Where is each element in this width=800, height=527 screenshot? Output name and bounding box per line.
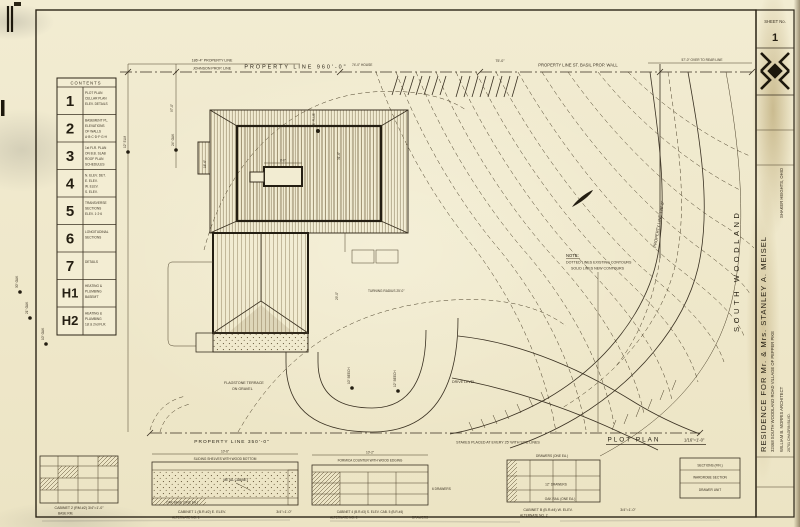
street-name-label: SOUTH WOODLAND	[732, 210, 741, 332]
cabinet-4-note-top: FORMICA COUNTER WITH WOOD EDGING	[338, 459, 403, 463]
contents-row-desc: A·B·C·D·F·G·H	[85, 135, 108, 139]
contents-row-num: 7	[66, 258, 74, 275]
sheet-border	[36, 10, 794, 517]
cabinet-1-subcaption: ALTERNATE NO. 1	[172, 516, 200, 520]
turning-radius-label: TURNING RADIUS 25'-0"	[368, 289, 404, 293]
property-line-right-label: PROPERTY LINE 135'-0"	[652, 200, 665, 248]
property-line-east-label: PROPERTY LINE ST. BASIL PROP. WALL	[538, 63, 618, 68]
contour-note: NOTE: DOTTED LINES EXISTING CONTOURS SOL…	[566, 190, 632, 271]
tree-label: 12" ELM	[123, 136, 127, 148]
architect-logo-icon	[761, 53, 789, 89]
cabinet-b-note-mid: 12" DRAWERS	[545, 483, 567, 487]
contents-row-desc: W. ELEV.	[85, 185, 99, 189]
tree-label: 21" OAK	[25, 301, 29, 314]
contents-row-desc: ELEVATIONS	[85, 124, 105, 128]
cabinet-4-dim: 10'-2"	[366, 451, 374, 455]
plot-plan-caption: PLOT PLAN 1/16"=1'-0"	[606, 437, 706, 445]
rear-line-label: 57'-0" OVER TO REAR LINE	[682, 58, 723, 62]
tree-label: 24" OAK	[171, 133, 175, 146]
top-dim-label: 186'-4" PROPERTY LINE	[192, 59, 233, 63]
note-title: NOTE:	[566, 253, 579, 258]
pencil-scribbles	[42, 520, 720, 522]
contents-table: CONTENTS 1 PLOT PLAN CELLAR PLAN ELEV. D…	[57, 78, 116, 335]
contents-row-desc: 1st FLR. PLAN	[85, 146, 107, 150]
cabinet-b-scale: 3/4"=1'-0"	[620, 508, 636, 512]
north-dim-label: 97'-0"	[170, 104, 174, 112]
west-dim-label: 16'-6"	[203, 160, 207, 168]
contents-row-desc: ROOF PLAN	[85, 157, 104, 161]
cabinet-1-note-top: SLIDING SHELVES WITH WOOD BOTTOM	[194, 457, 257, 461]
right-dim-label: 75'-0"	[495, 59, 505, 63]
cabinet-b-detail: DRAWERS (ONE EA.) 12" DRAWERS OAK RAIL (…	[507, 454, 636, 518]
contents-header: CONTENTS	[70, 81, 101, 86]
note-line-2: SOLID LINES NEW CONTOURS	[571, 267, 625, 271]
contents-row-num: H1	[62, 286, 79, 301]
cabinet-2-caption: CABINET 2 (RM.#2) 3/4"=1'-0"	[54, 506, 104, 510]
cabinet-1-scale: 3/4"=1'-0"	[276, 510, 292, 514]
property-line-top-label: PROPERTY LINE 960'-0"	[244, 65, 347, 71]
sections-header: SECTIONS (FIN.)	[697, 464, 722, 468]
cabinet-4-detail: 10'-2" FORMICA COUNTER WITH WOOD EDGING …	[312, 451, 451, 520]
contents-row-desc: TRANSVERSE	[85, 201, 107, 205]
cabinet-1-caption: CABINET 1 (B.R.#2) E. ELEV.	[178, 510, 226, 514]
contents-row-num: H2	[62, 313, 79, 328]
tree-label: 12" BEECH	[393, 370, 397, 387]
contents-row-num: 2	[66, 121, 74, 138]
contents-row-desc: S. ELEV.	[85, 190, 98, 194]
title-address: 32468 SOUTH WOODLAND ROAD VILLAGE OF PEP…	[770, 331, 775, 452]
contents-row-desc: N. ELEV. DET.	[85, 174, 106, 178]
contents-row-desc: ELEV. 1·2·6	[85, 212, 102, 216]
contents-row-desc: LONGITUDINAL	[85, 230, 109, 234]
contents-row-desc: SCHEDULES	[85, 163, 105, 167]
contents-row-num: 1	[66, 93, 74, 110]
contents-row-desc: CELLAR PLAN	[85, 97, 107, 101]
title-architect-city: SHAKER HEIGHTS, OHIO	[779, 167, 784, 218]
contents-row-desc: BASEM'T	[85, 295, 99, 299]
tree-label: 30" OAK	[15, 275, 19, 288]
sheet-number-label: SHEET No.	[764, 19, 786, 24]
cabinet-b-note-base: OAK RAIL (ONE EA.)	[545, 497, 576, 501]
title-architect: WILLIAM B. MORRIS ARCHITECT	[779, 386, 784, 452]
tree-label: 10" BEECH	[347, 367, 351, 384]
wing-dim-label: 29'-0"	[335, 292, 339, 300]
cabinet-2-subcaption: BASE RM.	[58, 512, 73, 516]
property-line-bottom-label: PROPERTY LINE 350'-0"	[194, 439, 269, 445]
cabinet-b-subcaption: ALTERNATE NO. 2	[520, 514, 548, 518]
sections-note-1: WARDROBE SECTION	[693, 476, 727, 480]
title-project: RESIDENCE FOR Mr. & Mrs. STANLEY A. MEIS…	[759, 236, 768, 452]
contents-row-desc: SECTIONS	[85, 207, 101, 211]
plot-plan-title: PLOT PLAN	[607, 437, 660, 444]
contents-row-desc: BASEMENT PL.	[85, 119, 108, 123]
contents-row-desc: SECTIONS	[85, 236, 101, 240]
cabinet-1-dim: 10'-6"	[221, 450, 229, 454]
contents-row-desc: ELEV. DETAILS	[85, 102, 108, 106]
contents-row-num: 5	[66, 203, 74, 220]
paper-edge-marks	[1, 2, 21, 116]
contents-row-desc: PLOT PLAN	[85, 91, 103, 95]
contents-row-num: 6	[66, 231, 74, 248]
contents-row-desc: ON B.B. SLAB	[85, 152, 106, 156]
roof-dim-label: 31'-6"	[337, 152, 341, 160]
cabinet-1-note-mid: METAL CABINET	[224, 478, 249, 482]
contents-row-num: 3	[66, 148, 74, 165]
cabinet-4-note-right: 6 DRAWERS	[432, 487, 451, 491]
house-plan: 8'-0" 38" FLUE 31'-6" 29'-0" 16'-6" 97'-…	[168, 104, 408, 391]
cabinet-4-subcaption: ALTERNATE NO. 2	[330, 516, 358, 520]
cabinet-b-caption: CABINET B (B.R.#4) W. ELEV.	[523, 508, 572, 512]
cabinet-1-detail: 10'-6" SLIDING SHELVES WITH WOOD BOTTOM …	[152, 450, 298, 520]
sections-detail: SECTIONS (FIN.) WARDROBE SECTION DRAWER …	[680, 458, 740, 498]
cabinet-b-note-top: DRAWERS (ONE EA.)	[536, 454, 568, 458]
contents-row-desc: PLUMBING	[85, 290, 102, 294]
terrace-label-1: FLAGSTONE TERRACE	[224, 381, 264, 385]
terrace-label-2: ON GRAVEL	[232, 387, 253, 391]
tree-label: 10" OAK	[41, 327, 45, 340]
detail-drawings: CABINET 2 (RM.#2) 3/4"=1'-0" BASE RM. 10…	[40, 450, 740, 523]
title-architect-addr: 20701 CHAGRIN BLVD.	[787, 413, 791, 452]
blueprint-sheet: SHEET No. 1 RESIDENCE FOR Mr. & Mrs. STA…	[0, 0, 800, 527]
top-owner-label: JOHNSON PROP. LINE	[193, 67, 232, 71]
hedge-ticks	[392, 76, 518, 97]
title-block: SHEET No. 1 RESIDENCE FOR Mr. & Mrs. STA…	[756, 19, 794, 487]
contents-row-desc: PLUMBING	[85, 317, 102, 321]
drive-level-label: DRIVE LEVEL	[452, 380, 475, 384]
contents-row-desc: OF WALLS	[85, 130, 101, 134]
chimney-dim-label: 8'-0"	[280, 159, 286, 163]
house-dim-label: 74'-0" HOUSE	[352, 63, 372, 67]
plot-plan-scale: 1/16"=1'-0"	[684, 438, 705, 443]
cabinet-5-subcaption: DRAWERS	[412, 516, 428, 520]
sections-note-2: DRAWER UNIT	[699, 488, 721, 492]
contents-row-desc: HEATING &	[85, 284, 103, 288]
note-line-1: DOTTED LINES EXISTING CONTOURS	[566, 261, 632, 265]
contents-row-num: 4	[66, 176, 75, 193]
cabinet-2-detail: CABINET 2 (RM.#2) 3/4"=1'-0" BASE RM.	[40, 456, 118, 516]
cabinet-4-caption: CABINET 4 (B.R.#3) S. ELEV. CAB. 5 (B.R.…	[337, 510, 403, 514]
cabinet-1-note-base: OAK BASE (ONE EA.)	[166, 501, 198, 505]
flue-label: 38" FLUE	[312, 113, 316, 127]
contents-row-desc: 1st & 2nd FLR.	[85, 323, 106, 327]
sheet-number: 1	[772, 32, 778, 44]
plot-plan-drawing: SHEET No. 1 RESIDENCE FOR Mr. & Mrs. STA…	[0, 0, 800, 527]
contents-row-desc: HEATING &	[85, 312, 103, 316]
contents-row-desc: E. ELEV.	[85, 179, 98, 183]
contents-row-desc: DETAILS	[85, 260, 98, 264]
